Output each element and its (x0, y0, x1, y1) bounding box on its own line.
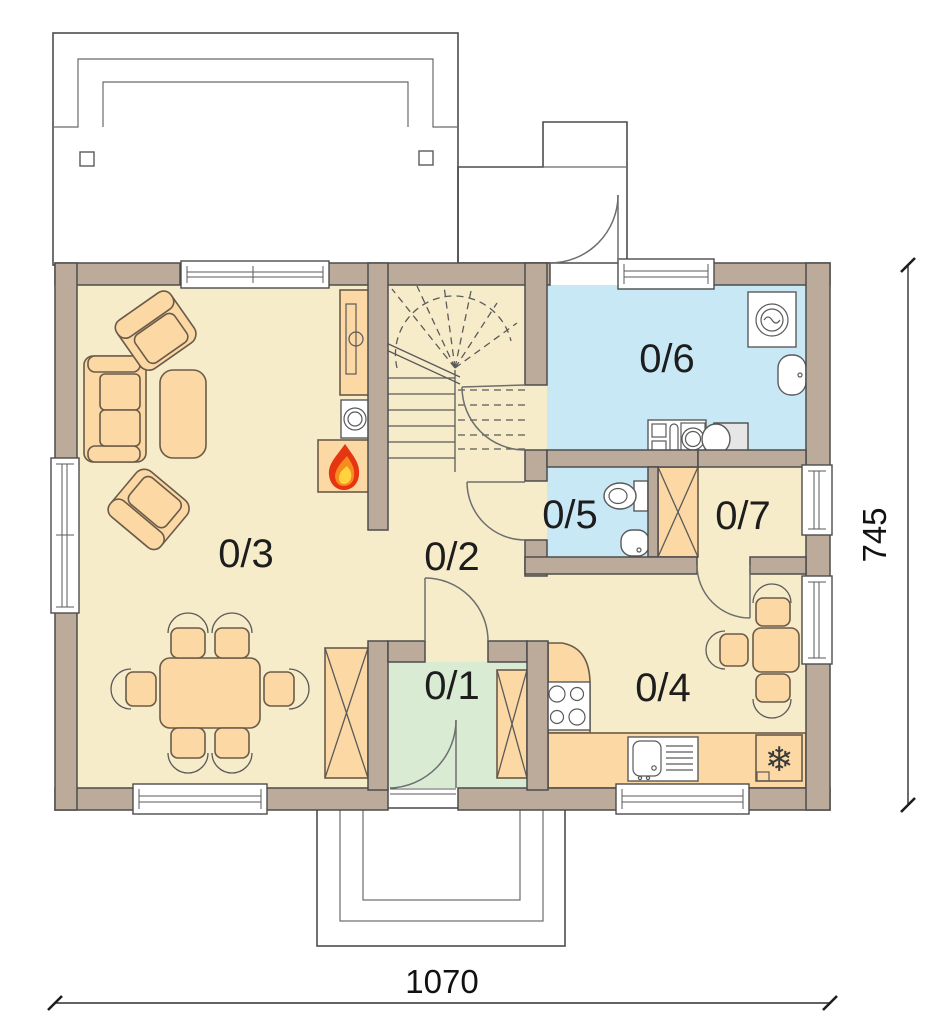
wall-left-lower (55, 612, 77, 810)
wall-06-05-divider (547, 450, 698, 467)
door-exterior-06 (550, 195, 618, 263)
sofa-cushion-1 (100, 374, 140, 410)
walkway-slab (458, 122, 627, 263)
dim-label-height: 745 (856, 507, 893, 562)
toilet-05 (604, 481, 648, 511)
terrace-roof-outline-inner (103, 82, 408, 127)
porch-step-middle (340, 808, 543, 921)
entry-porch (317, 808, 565, 946)
wall-left-upper (55, 263, 77, 460)
wall-bottom-center-right (458, 788, 620, 810)
kitchen-table (753, 628, 799, 672)
wall-01-top-left (388, 641, 425, 662)
terrace-post-left (80, 152, 94, 166)
window-07-right (802, 465, 832, 535)
terrace (53, 33, 458, 265)
porch-step-outer (317, 808, 565, 946)
terrace-roof-outline-outer (53, 59, 458, 127)
coffee-table (160, 370, 206, 458)
cooktop (546, 682, 590, 730)
wall-right-lower (806, 663, 830, 810)
wall-05-south (525, 557, 697, 574)
terrace-post-right (419, 151, 433, 165)
fridge: ❄ (756, 735, 802, 781)
wall-bottom-center-left (265, 788, 388, 810)
window-bath-top (618, 259, 714, 289)
label-room-07: 0/7 (715, 494, 771, 538)
wall-right-middle (806, 533, 830, 578)
tv-cabinet (340, 290, 370, 395)
terrace-slab (53, 33, 458, 265)
washing-machine (748, 292, 796, 347)
dim-label-width: 1070 (405, 963, 478, 1000)
label-room-03: 0/3 (218, 532, 274, 576)
side-walkway (458, 122, 627, 263)
dining-table (160, 658, 260, 728)
sofa-armrest-bottom (88, 446, 140, 462)
wall-top-center (325, 263, 550, 285)
wall-01-west (368, 641, 388, 790)
dimension-bottom: 1070 (48, 963, 837, 1010)
dimension-right: 745 (856, 258, 915, 812)
window-left (51, 458, 79, 613)
sofa-cushion-2 (100, 410, 140, 446)
wall-05-east (648, 467, 658, 557)
sofa-armrest-top (88, 356, 140, 372)
wall-07-south-stub (750, 557, 806, 574)
fireplace (318, 440, 370, 492)
corner-sink-05 (621, 530, 649, 556)
wall-01-top-right (488, 641, 527, 662)
wall-right-upper (806, 263, 830, 467)
wall-stub-05-top (525, 450, 547, 481)
wall-06-07-divider (698, 450, 806, 467)
window-kitchen-bottom (616, 784, 749, 814)
label-room-04: 0/4 (635, 666, 691, 710)
label-room-05: 0/5 (542, 493, 598, 537)
wall-stair-east (525, 263, 547, 385)
label-room-01: 0/1 (424, 664, 480, 708)
floor-plan-drawing: ❄ (0, 0, 928, 1024)
label-room-02: 0/2 (424, 535, 480, 579)
floor-plan-page: ❄ (0, 0, 928, 1024)
label-room-06: 0/6 (639, 337, 695, 381)
window-kitchen-right (802, 576, 832, 664)
sofa (84, 356, 146, 462)
washbasin-small (778, 355, 806, 395)
stove-flue (341, 400, 369, 438)
wall-stair-west (368, 263, 388, 530)
wardrobe-entry (497, 670, 527, 778)
wardrobe-hall (658, 467, 698, 557)
wall-01-east (527, 641, 548, 790)
window-living-top (181, 261, 329, 288)
window-dining-bottom (133, 784, 267, 814)
kitchen-sink (628, 737, 698, 781)
wardrobe-dining (325, 648, 368, 778)
porch-step-inner (363, 808, 520, 900)
